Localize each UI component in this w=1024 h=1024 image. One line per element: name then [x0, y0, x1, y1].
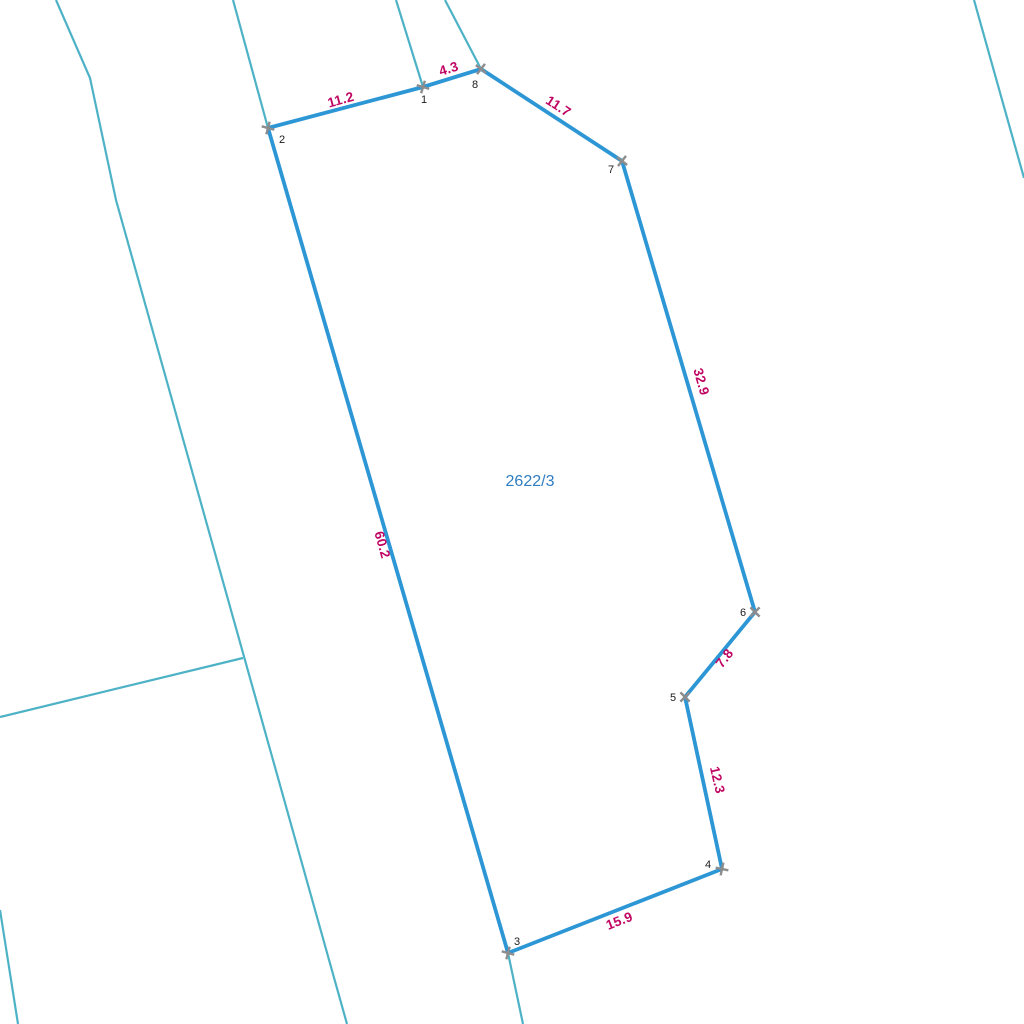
background-parcel-line-3[interactable]: [0, 910, 18, 1024]
background-parcel-line-5[interactable]: [508, 953, 523, 1024]
edge-length-label-32.9: 32.9: [690, 366, 712, 397]
edge-length-label-11.7: 11.7: [543, 93, 574, 120]
cadastral-map-viewport[interactable]: 11.24.311.732.97.812.315.960.2 12345678 …: [0, 0, 1024, 1024]
edge-length-label-7.8: 7.8: [712, 646, 736, 671]
vertex-markers-group: 12345678: [260, 60, 764, 961]
vertex-number-2: 2: [279, 134, 285, 146]
background-parcel-line-8[interactable]: [974, 0, 1024, 178]
edge-length-label-12.3: 12.3: [707, 765, 728, 795]
background-parcel-line-2[interactable]: [0, 658, 243, 717]
vertex-number-5: 5: [670, 692, 676, 704]
measurement-labels-group: 11.24.311.732.97.812.315.960.2: [326, 59, 737, 933]
vertex-number-3: 3: [514, 936, 520, 948]
background-parcel-line-1[interactable]: [56, 0, 347, 1024]
vertex-number-7: 7: [608, 164, 614, 176]
vertex-number-1: 1: [421, 94, 427, 106]
parcel-boundary-polygon[interactable]: [268, 69, 755, 953]
vertex-marker-4[interactable]: [714, 861, 729, 876]
background-parcel-line-6[interactable]: [396, 0, 423, 87]
parcel-boundary-group: [268, 69, 755, 953]
cadastral-map-canvas[interactable]: 11.24.311.732.97.812.315.960.2 12345678 …: [0, 0, 1024, 1024]
background-parcel-lines: [0, 0, 1024, 1024]
vertex-number-8: 8: [472, 79, 478, 91]
background-parcel-line-7[interactable]: [445, 0, 481, 69]
parcel-number-label: 2622/3: [506, 473, 555, 490]
vertex-number-6: 6: [740, 607, 746, 619]
edge-length-label-60.2: 60.2: [371, 529, 393, 560]
background-parcel-line-4[interactable]: [233, 0, 268, 128]
vertex-number-4: 4: [705, 859, 711, 871]
